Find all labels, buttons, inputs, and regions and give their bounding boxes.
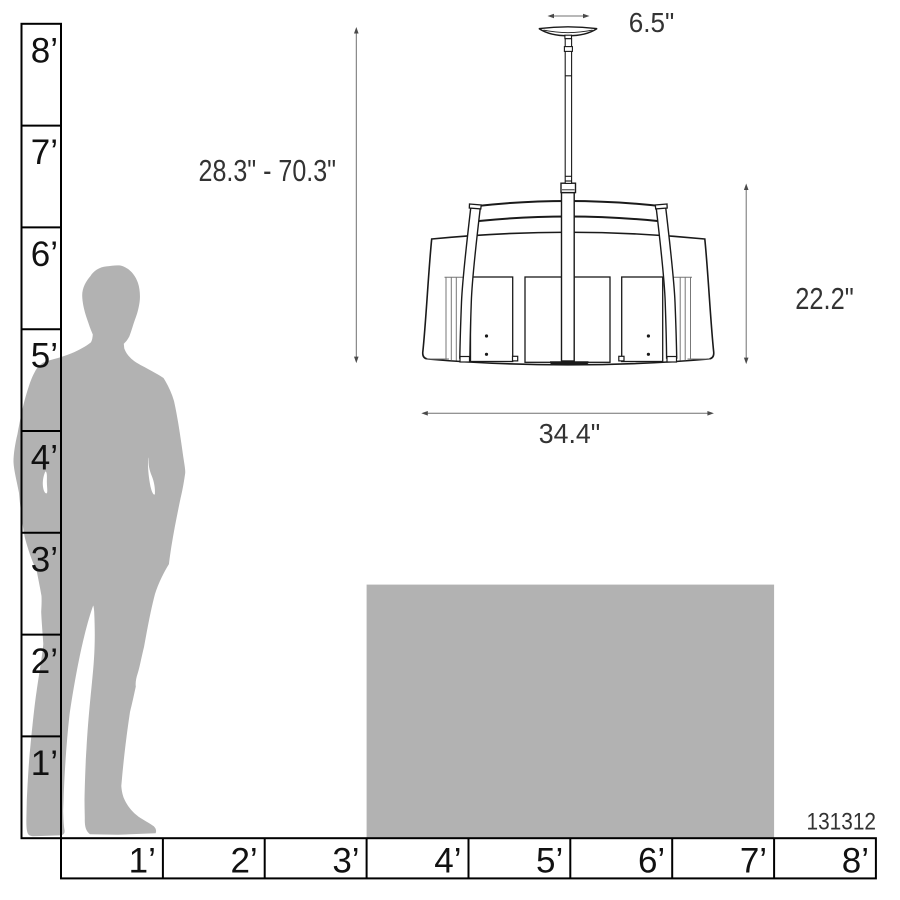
svg-text:8’: 8’ [842, 842, 869, 881]
svg-text:2’: 2’ [230, 842, 257, 881]
svg-text:131312: 131312 [807, 809, 877, 836]
svg-text:34.4": 34.4" [539, 418, 601, 449]
svg-text:22.2": 22.2" [795, 281, 854, 316]
svg-text:6’: 6’ [638, 842, 665, 881]
svg-text:7’: 7’ [740, 842, 767, 881]
svg-text:3’: 3’ [31, 540, 58, 579]
svg-text:6.5": 6.5" [629, 7, 675, 38]
svg-text:6’: 6’ [31, 235, 58, 274]
svg-text:5’: 5’ [536, 842, 563, 881]
svg-text:3’: 3’ [332, 842, 359, 881]
svg-text:28.3" - 70.3": 28.3" - 70.3" [199, 153, 337, 188]
svg-text:5’: 5’ [31, 337, 58, 376]
svg-text:4’: 4’ [434, 842, 461, 881]
svg-text:1’: 1’ [129, 842, 156, 881]
svg-text:2’: 2’ [31, 642, 58, 681]
svg-text:7’: 7’ [31, 133, 58, 172]
svg-text:4’: 4’ [31, 439, 58, 478]
svg-text:8’: 8’ [31, 31, 58, 70]
svg-text:1’: 1’ [31, 744, 58, 783]
